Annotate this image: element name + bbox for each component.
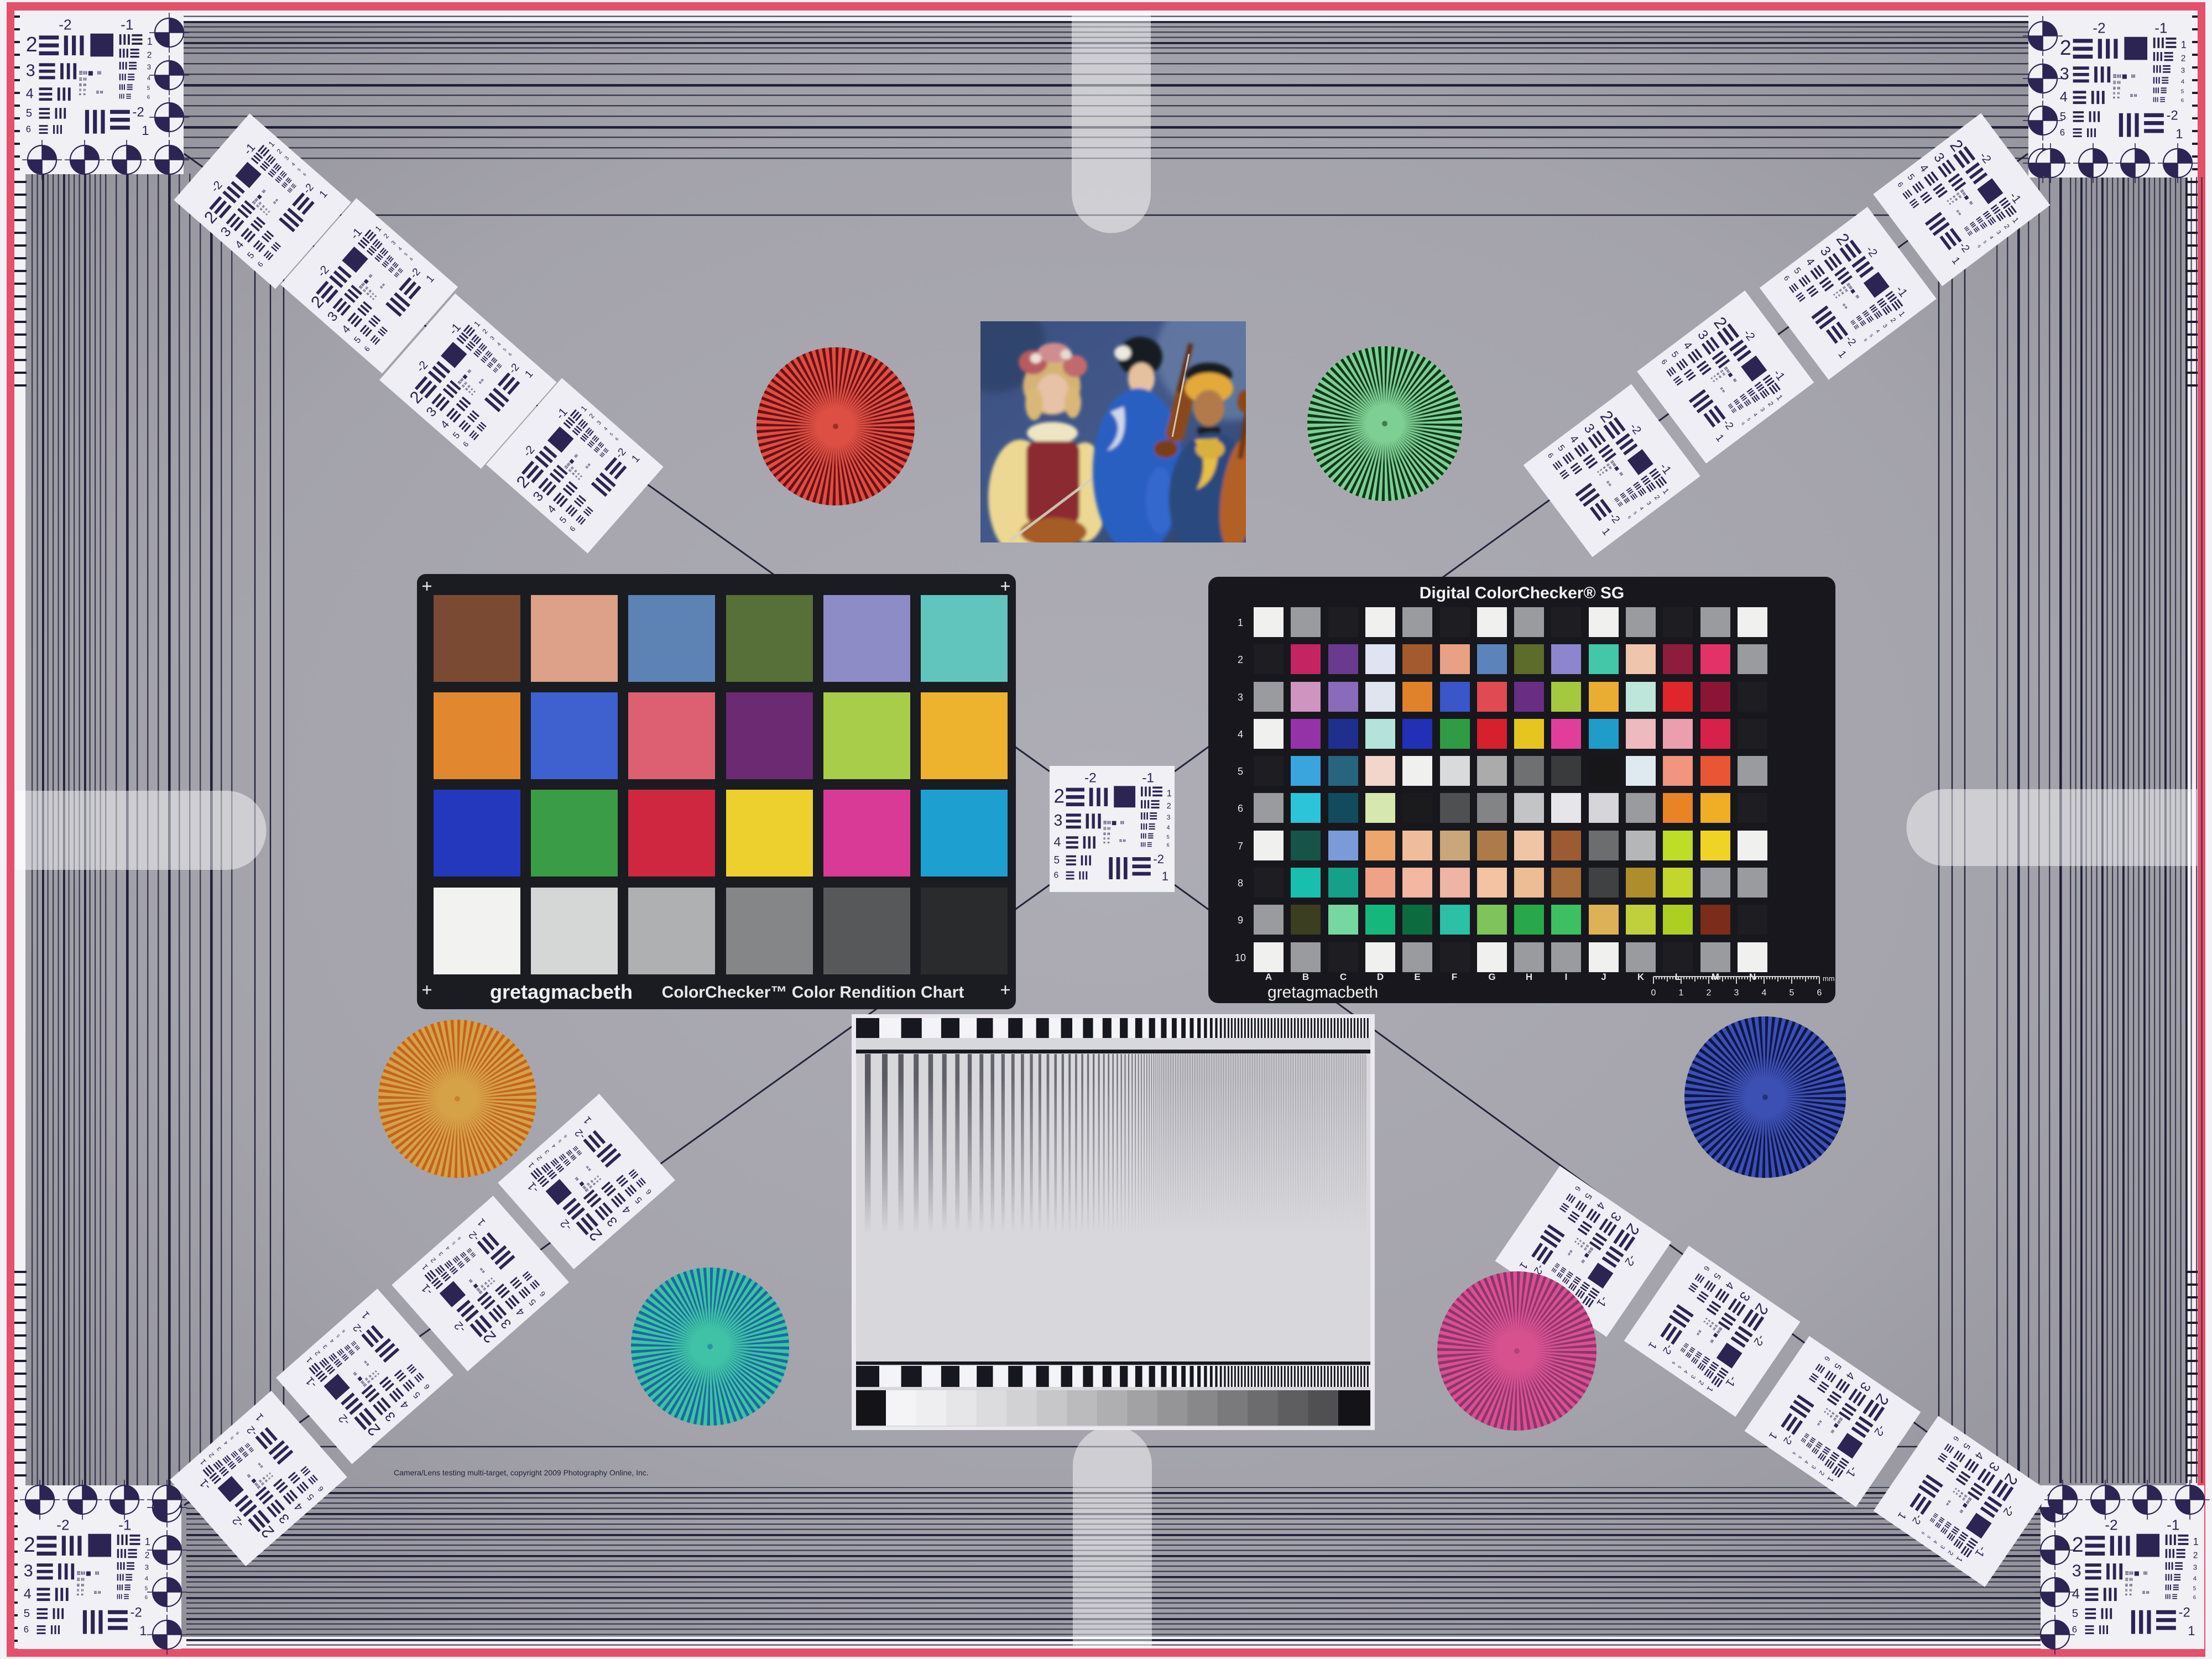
svg-text:H: H bbox=[1526, 972, 1532, 982]
svg-text:3: 3 bbox=[1734, 988, 1739, 998]
svg-text:K: K bbox=[1637, 972, 1645, 982]
svg-text:gretagmacbeth: gretagmacbeth bbox=[1267, 983, 1378, 1001]
svg-text:6: 6 bbox=[1817, 988, 1822, 998]
svg-text:F: F bbox=[1452, 972, 1457, 982]
svg-text:gretagmacbeth: gretagmacbeth bbox=[490, 980, 633, 1003]
svg-text:Camera/Lens testing multi-targ: Camera/Lens testing multi-target, copyri… bbox=[394, 1468, 649, 1477]
svg-text:1: 1 bbox=[1679, 988, 1684, 998]
svg-text:4: 4 bbox=[1762, 988, 1767, 998]
svg-text:2: 2 bbox=[1238, 654, 1243, 665]
svg-text:Digital ColorChecker® SG: Digital ColorChecker® SG bbox=[1420, 584, 1625, 602]
svg-text:J: J bbox=[1601, 972, 1606, 982]
svg-text:7: 7 bbox=[1238, 841, 1243, 852]
svg-text:ColorChecker™ Color Rendition: ColorChecker™ Color Rendition Chart bbox=[662, 983, 964, 1001]
svg-text:9: 9 bbox=[1238, 915, 1243, 926]
svg-text:mm: mm bbox=[1823, 974, 1835, 983]
svg-text:4: 4 bbox=[1238, 729, 1243, 740]
svg-text:C: C bbox=[1340, 972, 1347, 982]
svg-text:I: I bbox=[1565, 972, 1568, 982]
svg-text:G: G bbox=[1488, 972, 1495, 982]
svg-text:A: A bbox=[1265, 972, 1272, 982]
svg-text:8: 8 bbox=[1238, 878, 1243, 889]
svg-text:2: 2 bbox=[1707, 988, 1712, 998]
svg-text:3: 3 bbox=[1238, 692, 1243, 703]
svg-text:5: 5 bbox=[1238, 766, 1243, 777]
svg-text:B: B bbox=[1302, 972, 1309, 982]
svg-text:D: D bbox=[1377, 972, 1384, 982]
svg-text:10: 10 bbox=[1235, 952, 1246, 963]
svg-text:E: E bbox=[1414, 972, 1420, 982]
svg-text:6: 6 bbox=[1238, 803, 1243, 814]
svg-text:5: 5 bbox=[1790, 988, 1794, 998]
svg-text:1: 1 bbox=[1238, 617, 1243, 628]
svg-text:0: 0 bbox=[1651, 988, 1656, 998]
